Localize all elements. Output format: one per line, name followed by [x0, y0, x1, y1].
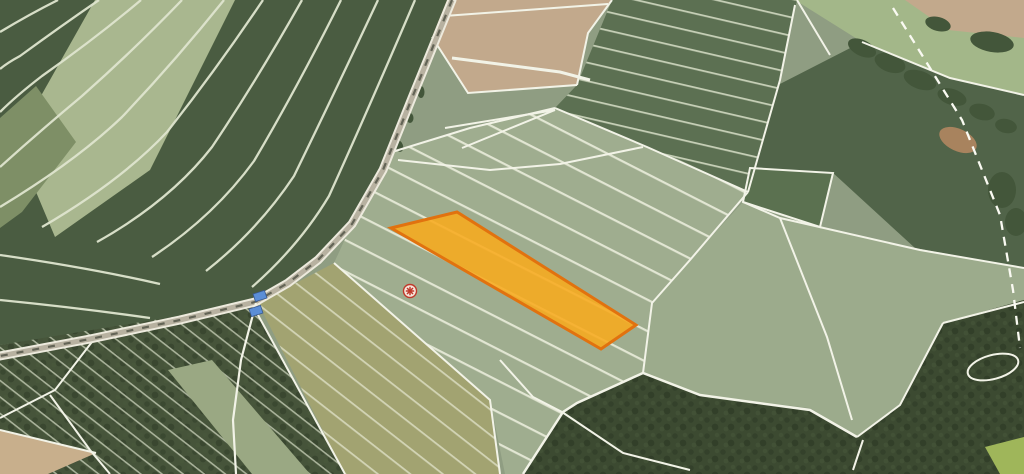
aerial-map-canvas[interactable] [0, 0, 1024, 474]
aerial-map-viewport[interactable] [0, 0, 1024, 474]
asterisk-marker-icon[interactable] [404, 285, 417, 298]
fields-layer [0, 0, 1024, 474]
